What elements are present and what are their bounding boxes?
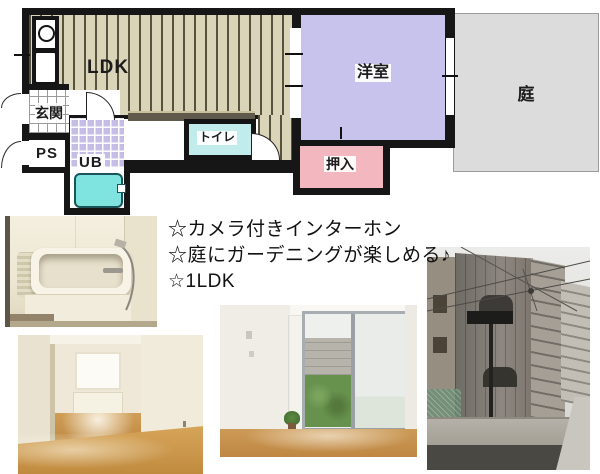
photo-room-garden-view [215, 300, 422, 462]
block-wall-outside [305, 338, 351, 376]
wall-outlet [183, 421, 186, 427]
listing-image: 庭 玄関 PS UB [0, 0, 600, 474]
feature-text: ☆カメラ付きインターホン ☆庭にガーデニングが楽しめる♪ ☆1LDK [168, 217, 451, 295]
feature-line-2: ☆庭にガーデニングが楽しめる♪ [168, 243, 451, 269]
sink-icon [38, 25, 55, 42]
left-wall-tick [14, 54, 30, 56]
wall-vent [246, 331, 252, 339]
wall-switch [249, 351, 254, 357]
garden-window-tick [442, 75, 458, 77]
partition-tick-2 [285, 85, 303, 87]
room-garden: 庭 [453, 13, 599, 172]
feature-line-3: ☆1LDK [168, 269, 451, 295]
glass-pane-left [305, 314, 351, 432]
photo-hallway [18, 335, 203, 474]
ps-door-arc-icon [1, 141, 21, 168]
western-room-label: 洋室 [355, 64, 391, 82]
closet-label: 押入 [324, 156, 356, 172]
glass-pane-right-frosted [355, 314, 405, 432]
shower-hose-icon [5, 216, 157, 327]
closet-tick [340, 127, 342, 139]
kitchen-sink-box [34, 18, 57, 50]
entrance-door-gap [21, 94, 29, 124]
sliding-door [302, 311, 408, 435]
ldk-label: LDK [87, 57, 129, 79]
room-floor-shine [220, 429, 417, 457]
garden-label: 庭 [518, 80, 535, 105]
far-window [75, 352, 121, 390]
foreground-floor-shine [18, 434, 203, 474]
bathtub-faucet [117, 184, 126, 193]
garden-greenery [305, 375, 351, 427]
kitchen-unit [32, 16, 59, 86]
entrance-label: 玄関 [35, 103, 63, 123]
photo-building-exterior [427, 247, 590, 470]
toilet-label: トイレ [197, 131, 237, 145]
ub-label: UB [77, 154, 105, 171]
kitchen-counter-box [34, 51, 57, 84]
photo-bathroom [5, 216, 157, 327]
entrance-door-arc-icon [1, 93, 21, 108]
partition-opening [290, 28, 301, 118]
partition-tick-1 [285, 53, 303, 55]
bathtub [74, 173, 123, 208]
ps-label: PS [36, 145, 58, 162]
feature-line-1: ☆カメラ付きインターホン [168, 217, 451, 243]
ps-door-gap [21, 141, 29, 165]
bathroom-floor-strip [10, 321, 157, 327]
